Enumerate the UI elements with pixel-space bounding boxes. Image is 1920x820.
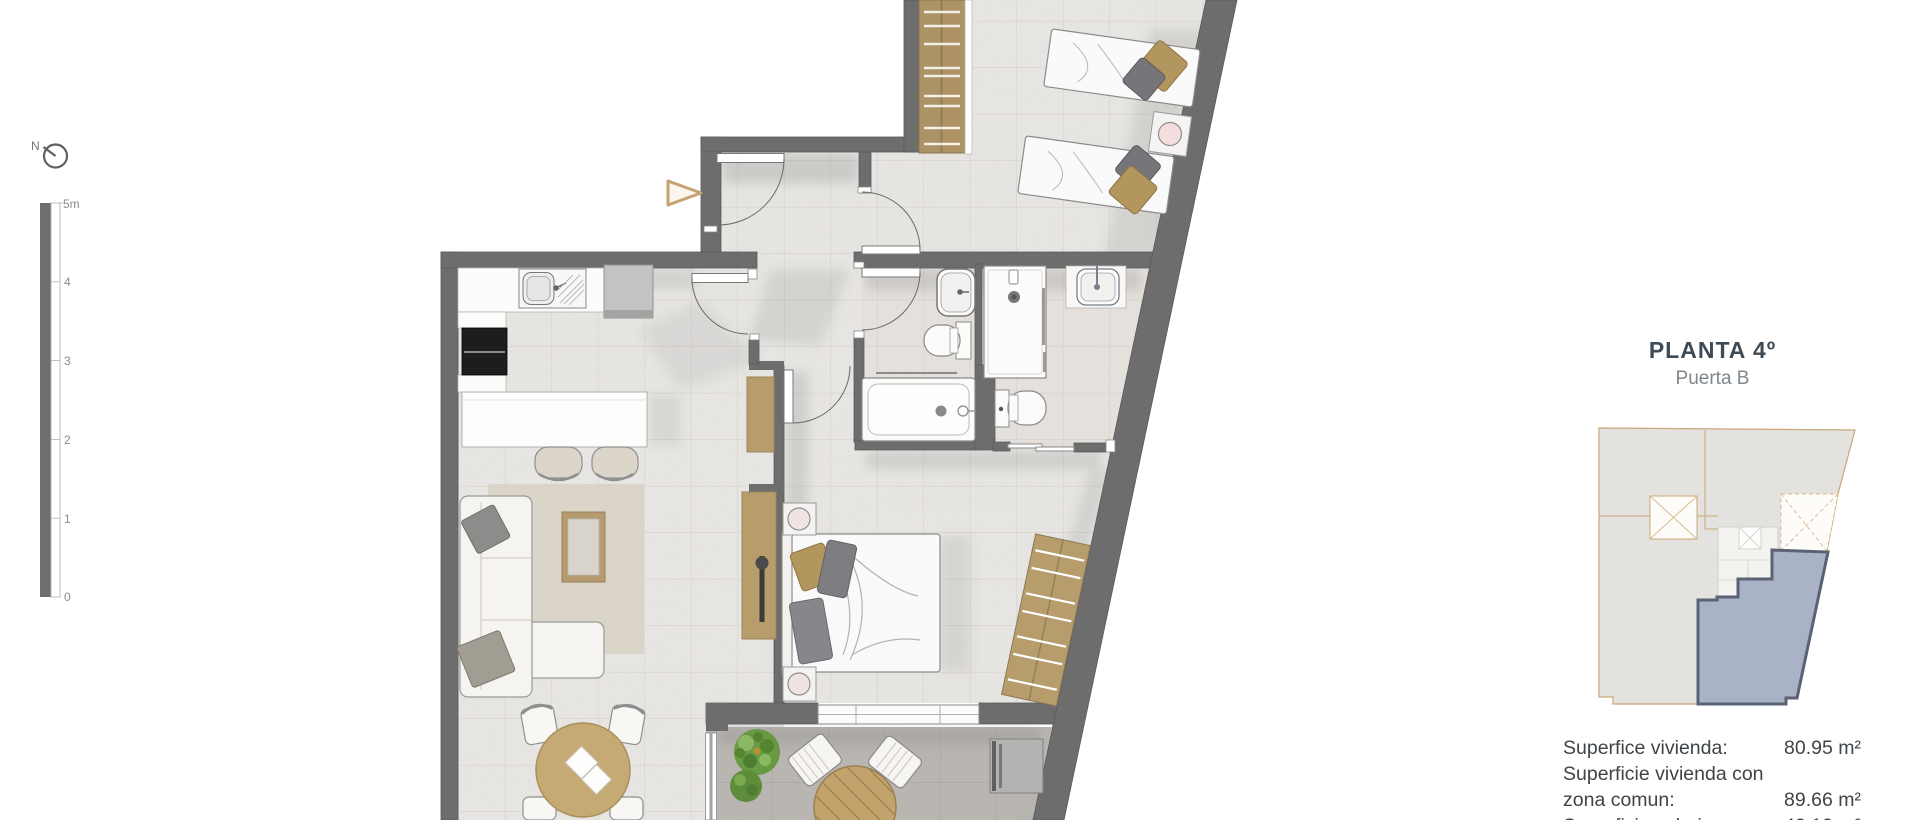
svg-text:5m: 5m xyxy=(63,197,80,211)
svg-text:4: 4 xyxy=(64,275,71,289)
svg-text:2: 2 xyxy=(64,433,71,447)
svg-text:N: N xyxy=(31,139,40,153)
svg-text:1: 1 xyxy=(64,512,71,526)
svg-text:0: 0 xyxy=(64,590,71,604)
svg-text:3: 3 xyxy=(64,354,71,368)
